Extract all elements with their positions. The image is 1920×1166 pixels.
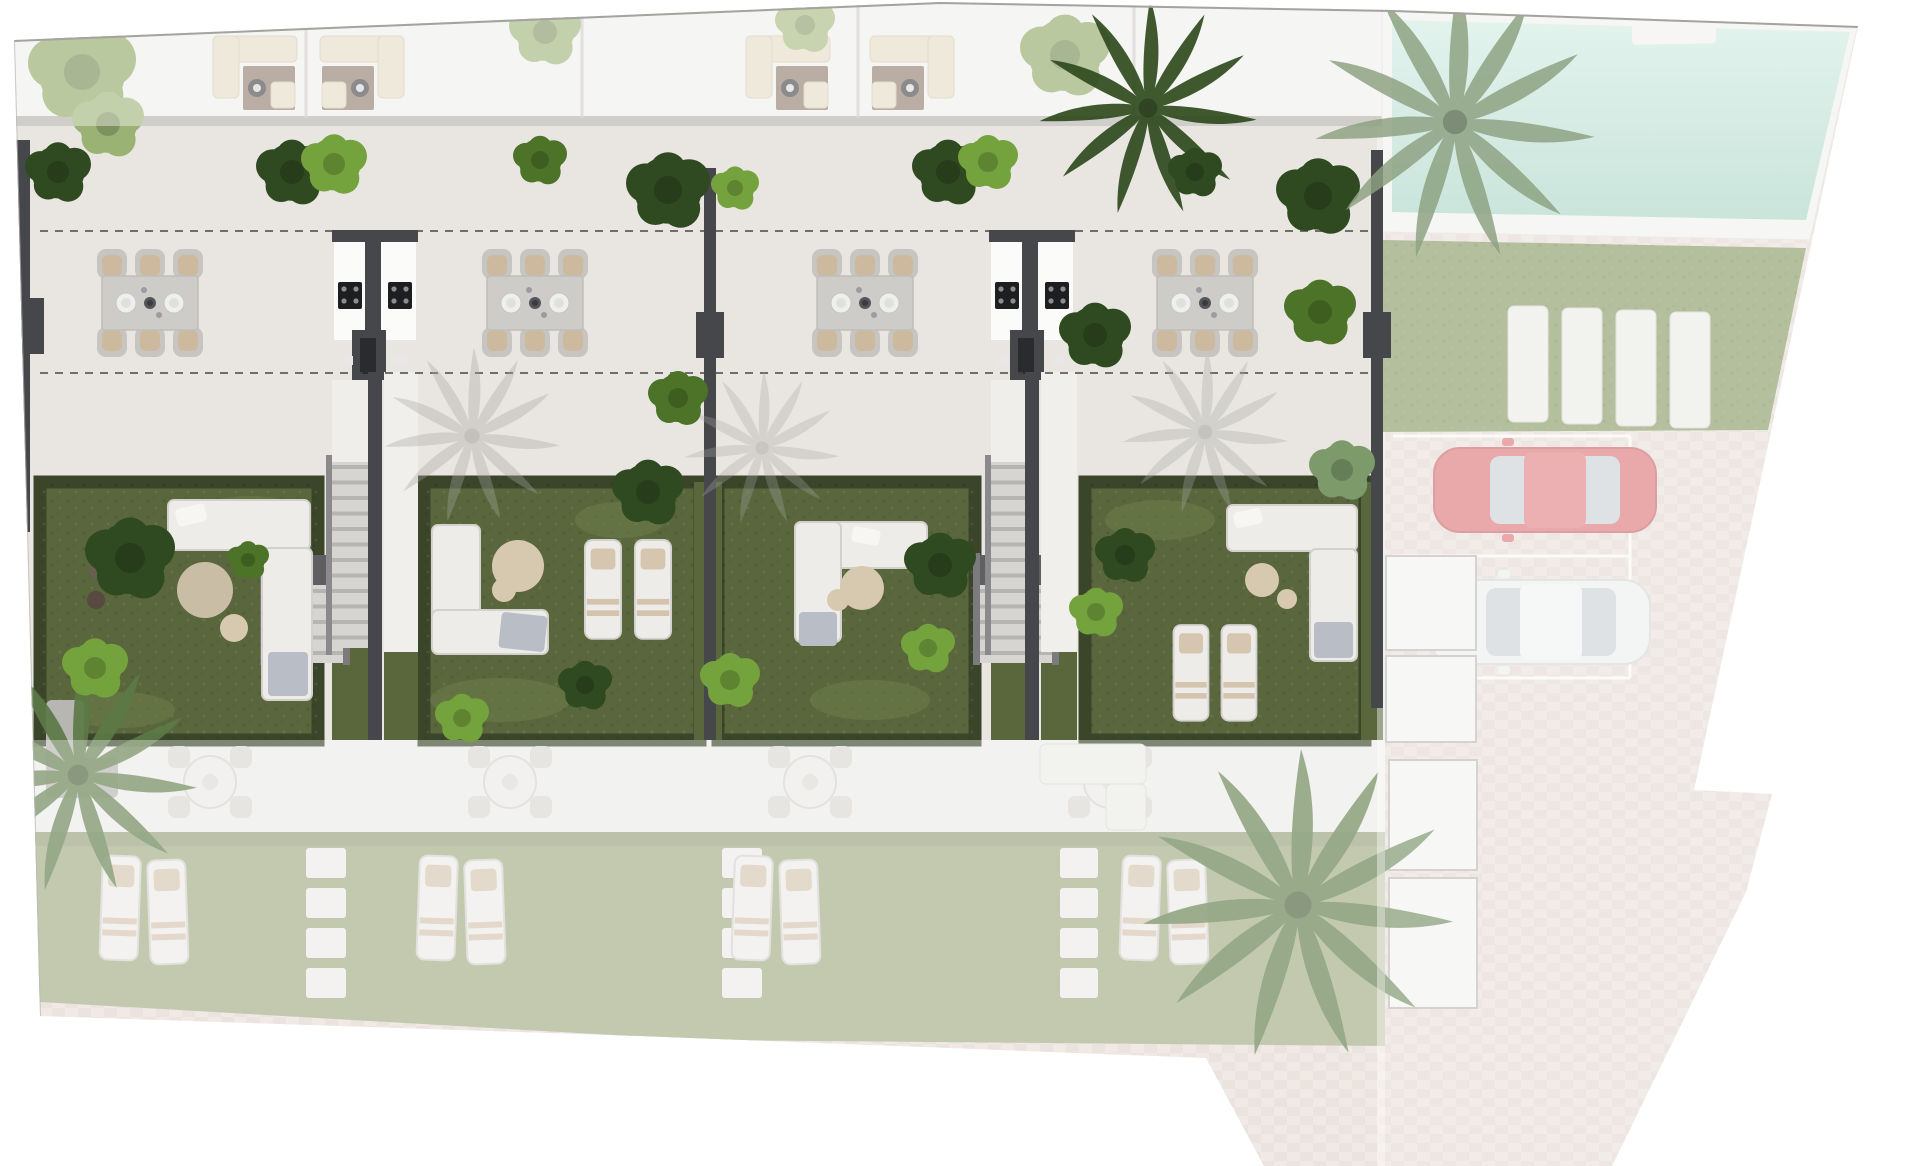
site-plan-rendering — [0, 0, 1920, 1166]
cooktop-icon — [338, 282, 362, 309]
garden-staircase-2 — [985, 380, 1027, 655]
dining-set-unit-1 — [97, 249, 203, 357]
dining-set-unit-4 — [1152, 249, 1258, 357]
dining-set-unit-2 — [482, 249, 588, 357]
divider-wall-3-4 — [1025, 372, 1039, 740]
fade-lower-row — [14, 740, 1385, 1166]
fade-right-zone — [1377, 0, 1920, 1166]
garden-staircase-1 — [326, 380, 368, 655]
site-plan-page — [0, 0, 1920, 1166]
divider-wall-1-2 — [368, 372, 382, 740]
cooktop-icon — [995, 282, 1019, 309]
cooktop-icon — [1045, 282, 1069, 309]
cooktop-icon — [388, 282, 412, 309]
dining-set-unit-3 — [812, 249, 918, 357]
